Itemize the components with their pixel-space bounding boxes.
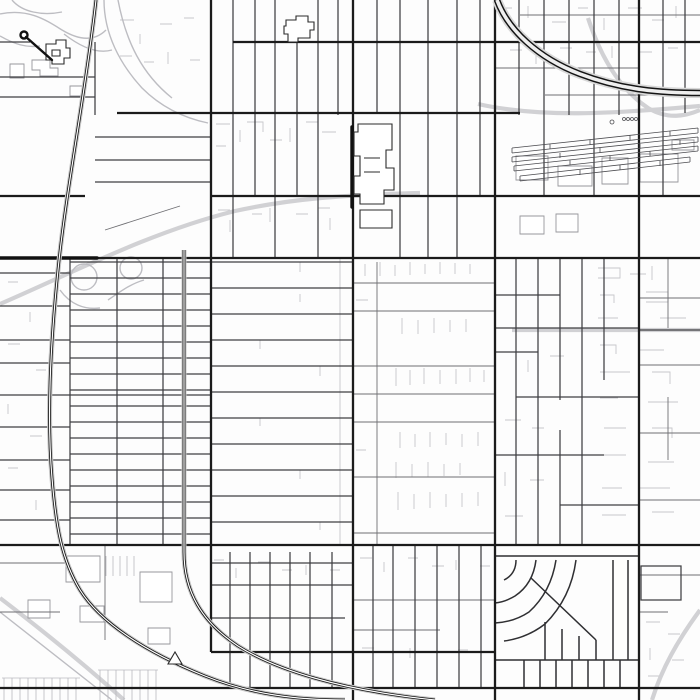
building-outlines bbox=[556, 214, 578, 232]
building-outlines bbox=[28, 600, 50, 618]
building-outlines bbox=[640, 154, 678, 182]
dark-buildings bbox=[52, 50, 60, 56]
map-canvas[interactable] bbox=[0, 0, 700, 700]
building-outlines bbox=[10, 64, 24, 78]
building-outlines bbox=[140, 572, 172, 602]
dark-buildings bbox=[360, 210, 392, 228]
map-view bbox=[0, 0, 700, 700]
building-outlines bbox=[520, 216, 544, 234]
building-outlines bbox=[148, 628, 170, 644]
